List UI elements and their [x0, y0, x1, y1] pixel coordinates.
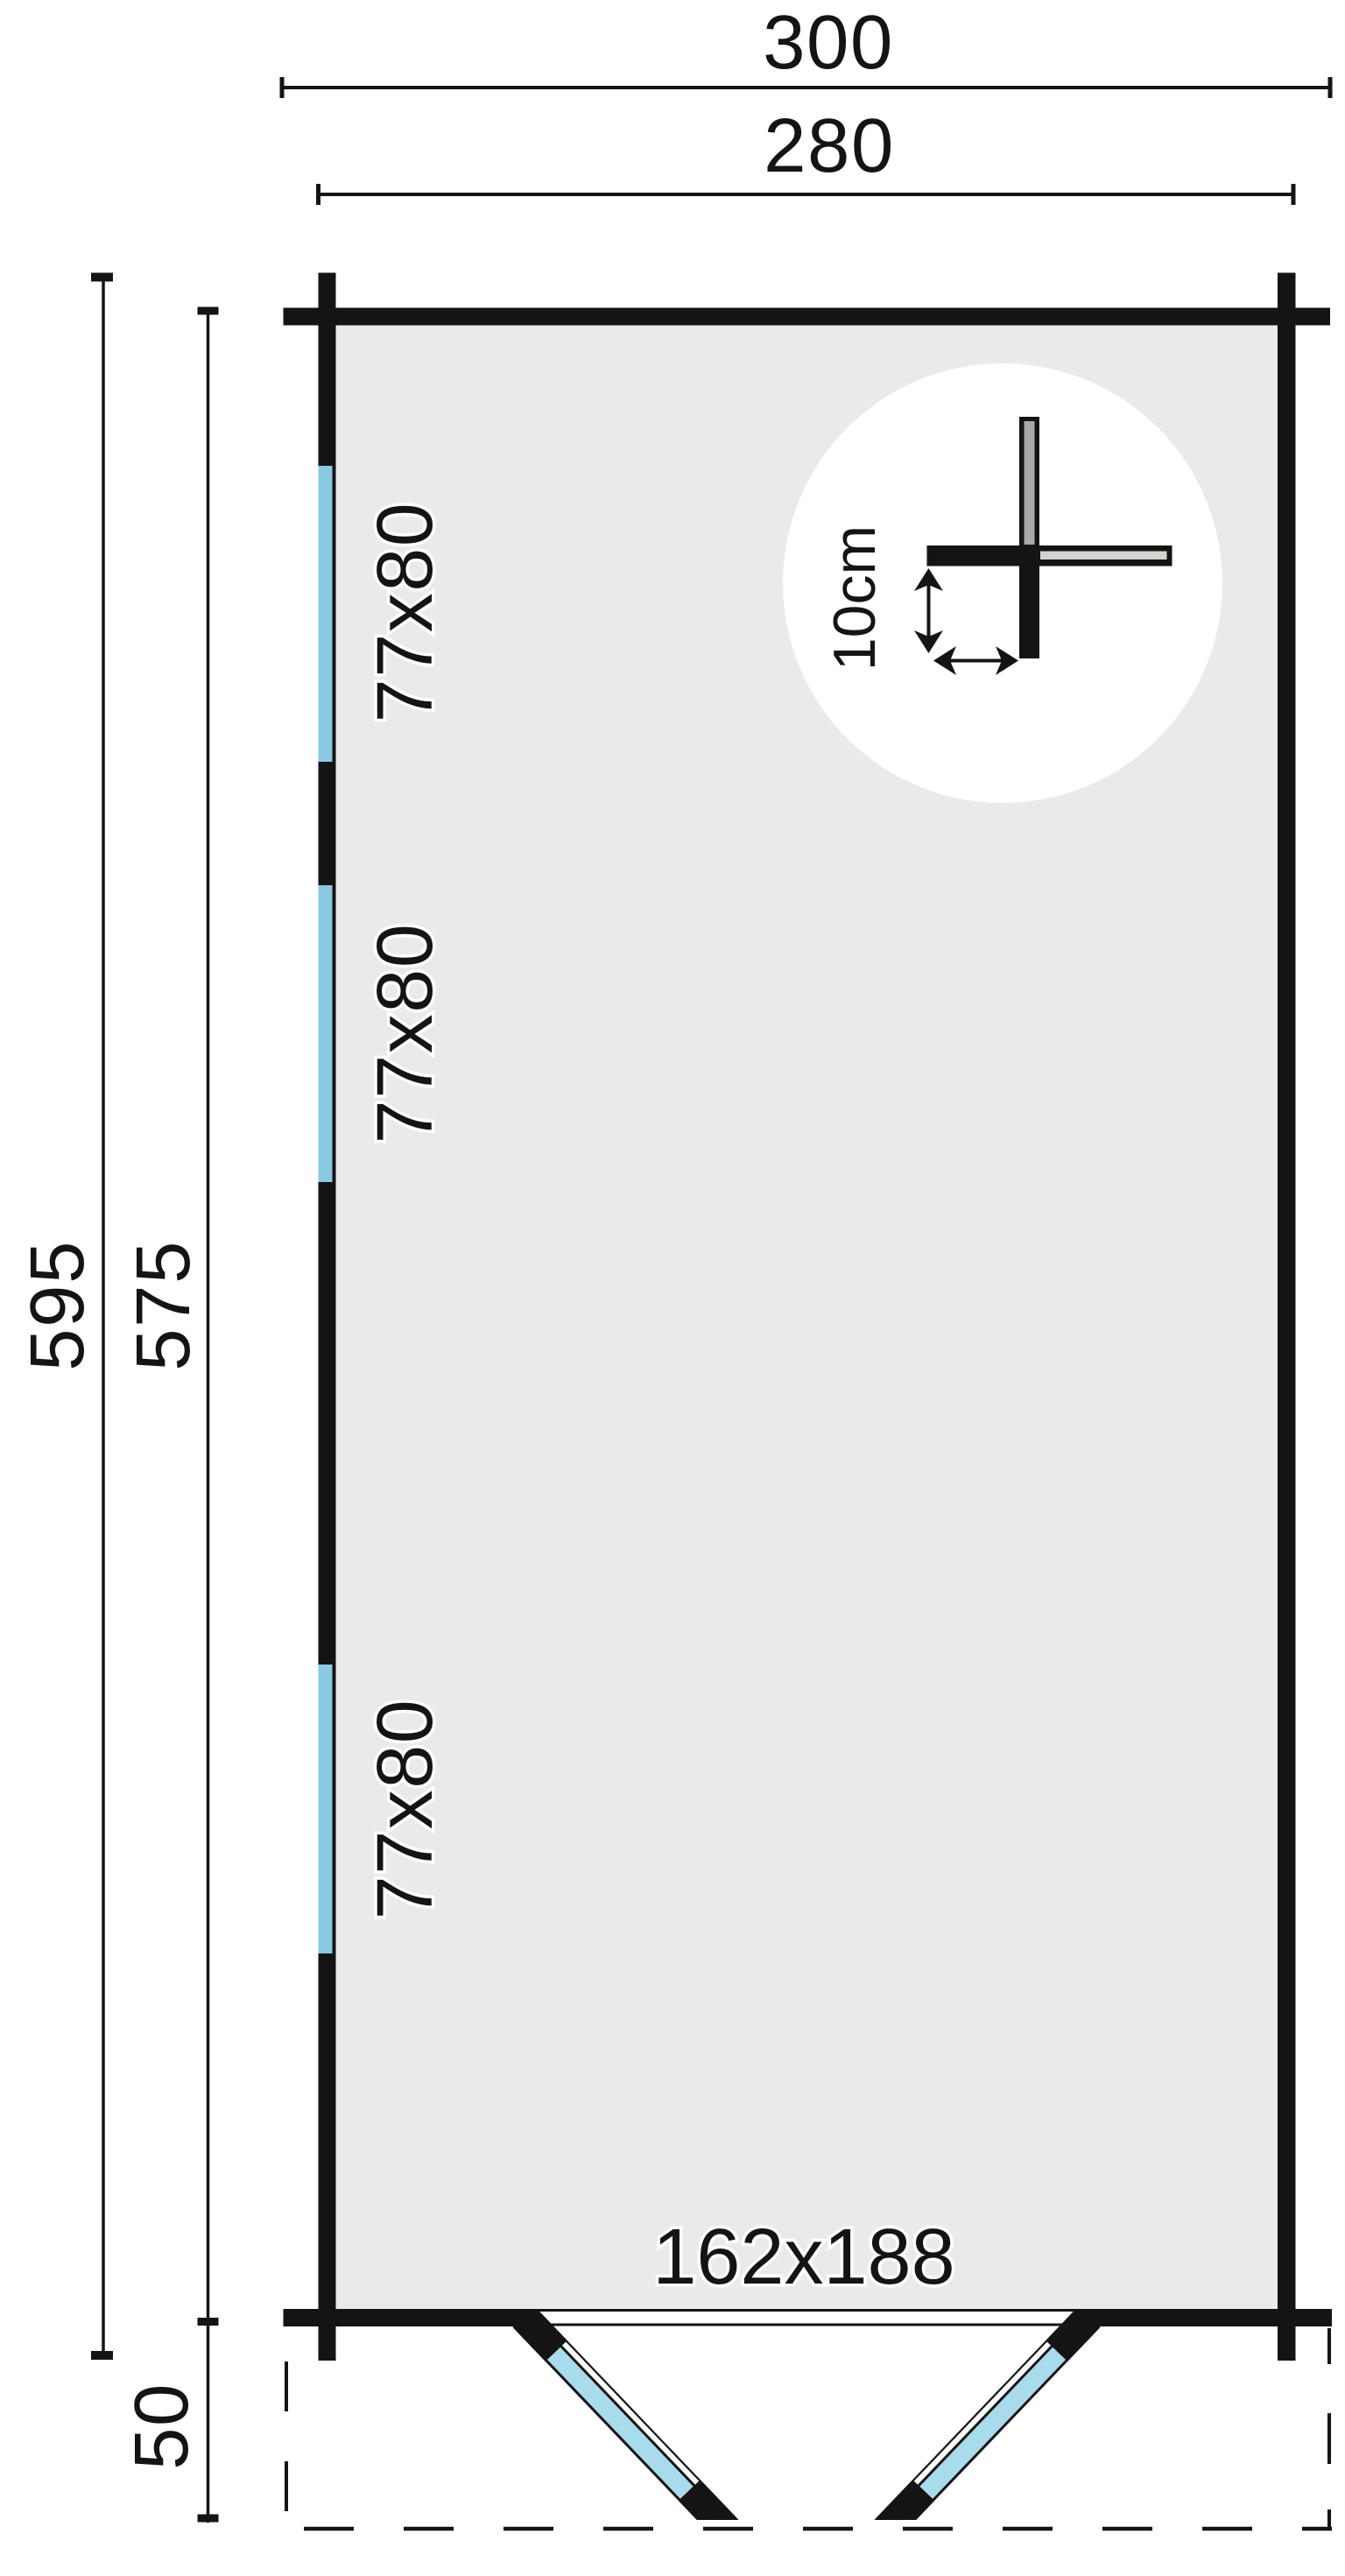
svg-text:162x188: 162x188: [652, 2214, 954, 2301]
svg-text:77x80: 77x80: [362, 1699, 449, 1920]
svg-text:300: 300: [763, 0, 894, 85]
svg-text:595: 595: [15, 1240, 100, 1371]
svg-text:50: 50: [119, 2382, 204, 2470]
svg-text:280: 280: [764, 103, 895, 188]
svg-text:77x80: 77x80: [362, 923, 449, 1144]
svg-text:77x80: 77x80: [362, 502, 449, 723]
svg-text:10cm: 10cm: [821, 525, 888, 671]
svg-text:575: 575: [121, 1240, 206, 1371]
